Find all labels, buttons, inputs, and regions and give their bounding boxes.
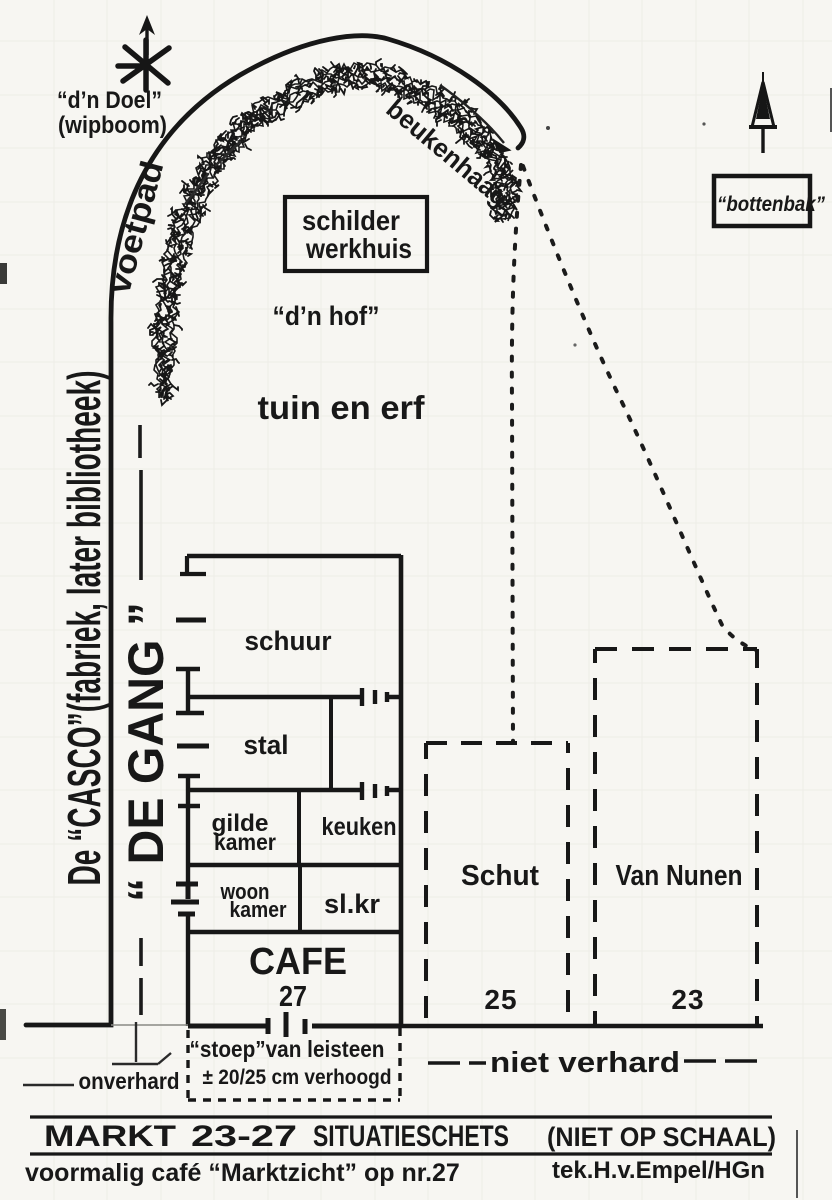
svg-text:(wipboom): (wipboom) bbox=[58, 112, 167, 139]
svg-text:stal: stal bbox=[244, 730, 289, 760]
svg-text:keuken: keuken bbox=[322, 813, 397, 841]
svg-text:kamer: kamer bbox=[214, 829, 276, 855]
svg-text:Schut: Schut bbox=[461, 860, 539, 892]
svg-text:“ DE GANG ”: “ DE GANG ” bbox=[118, 602, 174, 902]
svg-text:“d’n Doel”: “d’n Doel” bbox=[57, 87, 162, 114]
svg-text:voormalig café “Marktzicht” op: voormalig café “Marktzicht” op nr.27 bbox=[25, 1159, 460, 1187]
svg-text:tek.H.v.Empel/HGn: tek.H.v.Empel/HGn bbox=[552, 1157, 765, 1184]
svg-text:Van Nunen: Van Nunen bbox=[616, 860, 743, 892]
svg-text:onverhard: onverhard bbox=[79, 1068, 180, 1094]
svg-text:schilder: schilder bbox=[302, 205, 400, 236]
svg-text:werkhuis: werkhuis bbox=[305, 233, 412, 264]
svg-text:CAFE: CAFE bbox=[249, 941, 347, 983]
svg-text:schuur: schuur bbox=[245, 626, 332, 656]
svg-text:27: 27 bbox=[279, 981, 307, 1013]
svg-text:niet verhard: niet verhard bbox=[490, 1047, 680, 1079]
svg-text:“stoep”van leisteen: “stoep”van leisteen bbox=[190, 1036, 385, 1062]
svg-text:± 20/25 cm verhoogd: ± 20/25 cm verhoogd bbox=[203, 1066, 392, 1089]
svg-text:25: 25 bbox=[484, 984, 517, 1015]
svg-text:(NIET OP SCHAAL): (NIET OP SCHAAL) bbox=[547, 1122, 776, 1152]
svg-text:De “CASCO”(fabriek, later bibl: De “CASCO”(fabriek, later bibliotheek) bbox=[58, 371, 110, 886]
svg-text:MARKT23-27SITUATIESCHETS: MARKT23-27SITUATIESCHETS bbox=[44, 1120, 509, 1153]
svg-text:kamer: kamer bbox=[230, 897, 287, 922]
svg-text:tuin en erf: tuin en erf bbox=[258, 389, 426, 426]
svg-text:“bottenbak”: “bottenbak” bbox=[717, 193, 825, 216]
svg-text:“d’n hof”: “d’n hof” bbox=[273, 301, 380, 331]
svg-text:23: 23 bbox=[671, 984, 704, 1015]
svg-text:sl.kr: sl.kr bbox=[324, 889, 380, 919]
